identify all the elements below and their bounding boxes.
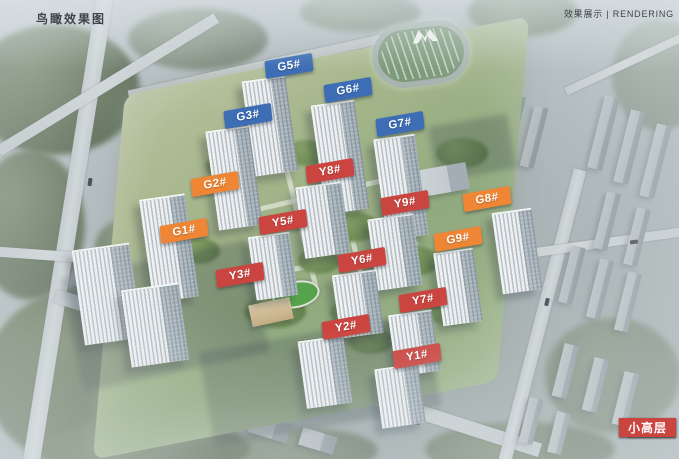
building-tag-G8: G8# <box>462 186 511 212</box>
building-tag-Y7: Y7# <box>398 287 447 313</box>
building-tag-G6: G6# <box>323 77 372 103</box>
building-tag-Y2: Y2# <box>321 314 370 340</box>
building-tag-G7: G7# <box>375 111 424 137</box>
building-tag-Y1: Y1# <box>392 343 441 369</box>
building-tag-Y9: Y9# <box>380 190 429 216</box>
building-tag-G1: G1# <box>159 218 208 244</box>
caption-top-left: 鸟瞰效果图 <box>36 10 106 27</box>
building-tag-G9: G9# <box>433 226 482 252</box>
building-tag-G5: G5# <box>264 53 313 79</box>
caption-top-right: 效果展示 | RENDERING <box>564 7 674 20</box>
building-tag-G2: G2# <box>190 171 239 197</box>
building-tag-G3: G3# <box>223 103 272 129</box>
legend-item-smallhigh: 小高层 <box>619 418 676 437</box>
building-tag-Y3: Y3# <box>215 262 264 288</box>
building-tag-Y5: Y5# <box>258 209 307 235</box>
aerial-rendering: G5#G6#G7#G3#G2#G1#G8#G9#Y8#Y9#Y5#Y6#Y3#Y… <box>0 0 679 459</box>
building-tag-Y6: Y6# <box>337 247 386 273</box>
building-tags-layer: G5#G6#G7#G3#G2#G1#G8#G9#Y8#Y9#Y5#Y6#Y3#Y… <box>0 0 679 459</box>
building-tag-Y8: Y8# <box>305 158 354 184</box>
